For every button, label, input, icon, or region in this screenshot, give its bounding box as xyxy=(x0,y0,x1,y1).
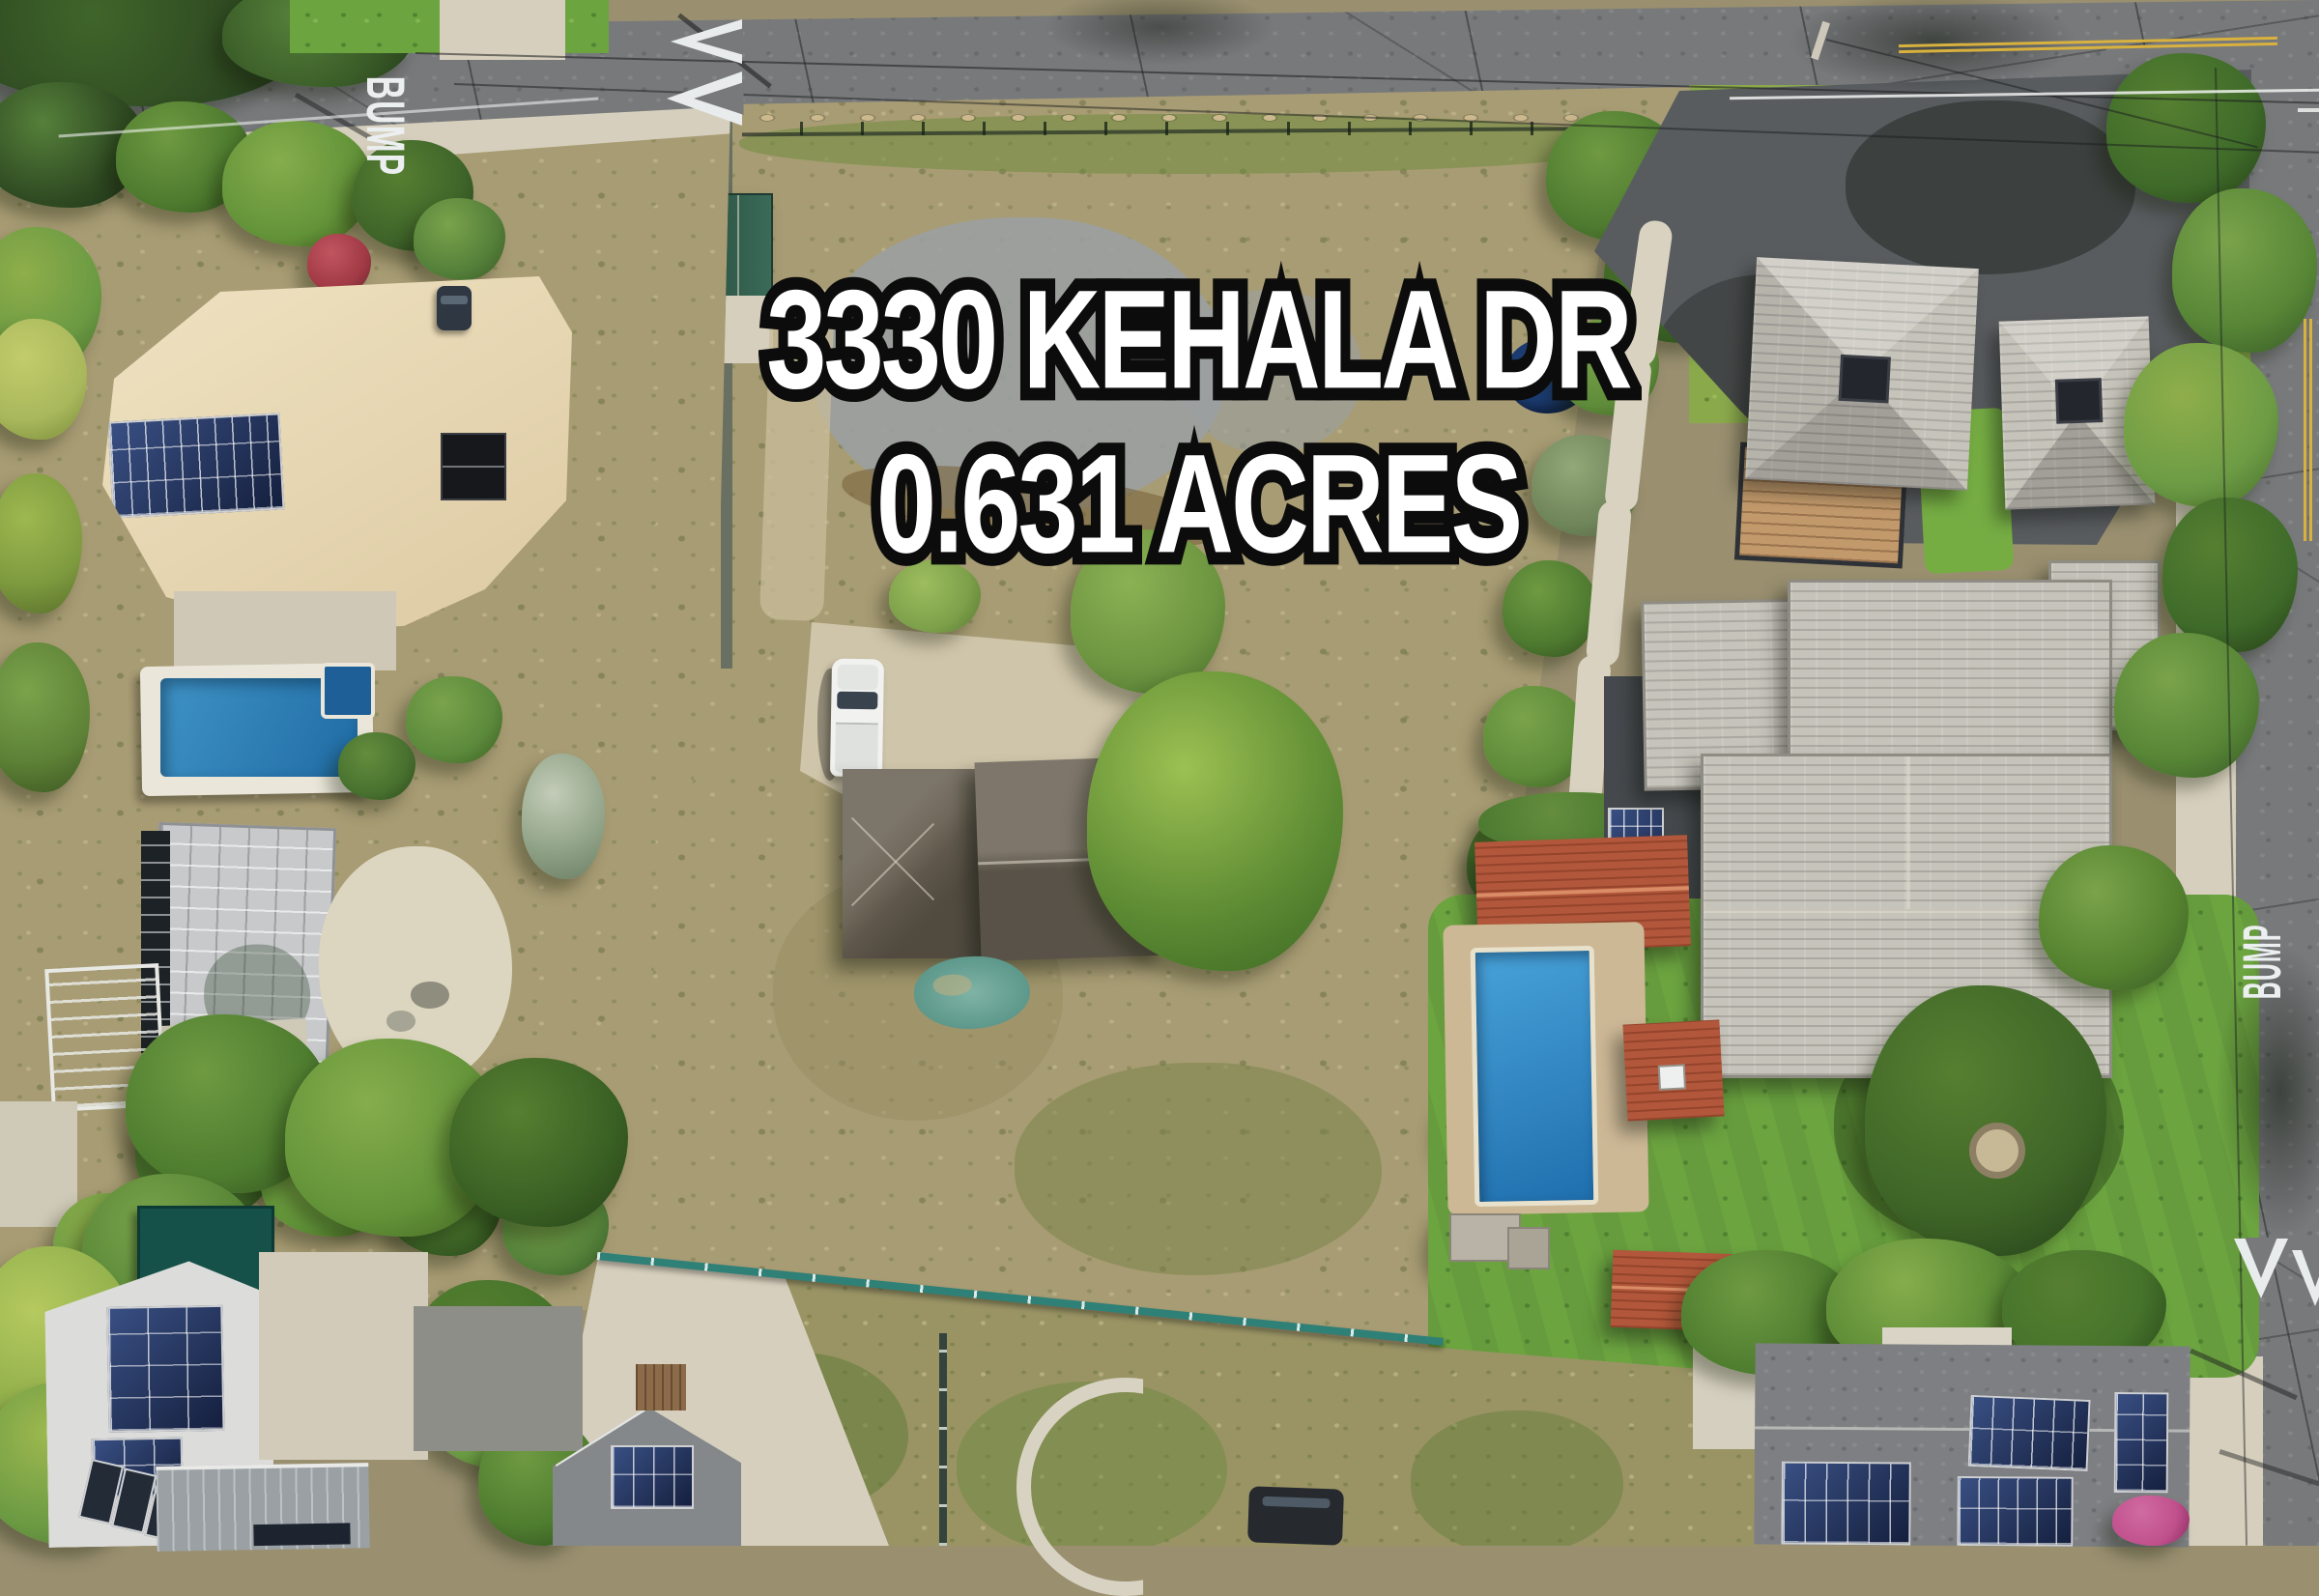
solar-array xyxy=(1957,1476,2073,1547)
solar-array xyxy=(611,1445,694,1509)
pergola-ridge xyxy=(1476,886,1689,898)
garden-tree xyxy=(414,198,505,280)
weed-patch xyxy=(1411,1411,1623,1555)
solar-array xyxy=(1781,1462,1911,1546)
lot-big-tree xyxy=(1087,671,1343,971)
lot-house-hip-roof xyxy=(843,769,989,958)
truck-windshield xyxy=(837,692,877,710)
speed-hump-chevron-down-icon xyxy=(2292,1250,2319,1306)
address-line-text: 3330 KEHALA DR xyxy=(766,261,1630,418)
lawn-tree xyxy=(1865,985,2106,1256)
bottomleft-driveway xyxy=(259,1252,428,1460)
left-driveway-stub xyxy=(0,1101,77,1227)
solar-array xyxy=(106,1305,224,1433)
roof-shade xyxy=(843,769,989,958)
acreage-line-text: 0.631 ACRES xyxy=(876,425,1520,582)
solar-strip xyxy=(253,1523,350,1546)
roadside-palm xyxy=(2114,633,2259,778)
aerial-photo: BUMP BUMP 3330 KEHALA DR 3330 KEHALA DR … xyxy=(0,0,2319,1546)
truck-roof xyxy=(838,665,878,691)
fire-pit xyxy=(1969,1123,2025,1179)
address-line: 3330 KEHALA DR 3330 KEHALA DR xyxy=(766,270,1630,411)
red-shed-roof xyxy=(1622,1019,1724,1121)
pool-patch xyxy=(932,974,972,996)
left-house-patio xyxy=(174,591,396,670)
right-pool xyxy=(1471,946,1599,1207)
solar-array xyxy=(2114,1392,2169,1493)
white-pickup-truck xyxy=(830,659,884,778)
address-overlay: 3330 KEHALA DR 3330 KEHALA DR 0.631 ACRE… xyxy=(0,286,2319,558)
parked-car-dark xyxy=(1247,1486,1344,1545)
driveway-apron-top xyxy=(440,0,565,60)
brush-patch xyxy=(1015,1063,1382,1275)
white-cross-line xyxy=(2298,108,2319,112)
flowering-bush xyxy=(307,234,371,294)
rock xyxy=(377,953,410,976)
roof-ridge xyxy=(1906,756,1910,909)
lawn-tree xyxy=(2039,845,2189,990)
speed-hump-chevron-icon xyxy=(667,71,742,126)
truck-bed xyxy=(835,723,878,774)
left-spa xyxy=(321,663,375,719)
silver-bush xyxy=(522,754,605,879)
gray-metal-roof xyxy=(156,1463,370,1552)
shed-skylight xyxy=(1658,1064,1686,1090)
rock xyxy=(386,1011,415,1032)
shed-ridge xyxy=(737,195,739,296)
drive-shadow xyxy=(1846,100,2135,274)
garden-palm xyxy=(222,121,372,246)
tree-shadow-on-road xyxy=(1044,0,1275,66)
bump-text: BUMP xyxy=(355,75,417,176)
rock xyxy=(411,982,449,1009)
fence-vertical xyxy=(939,1333,947,1546)
outdoor-kitchen xyxy=(1507,1227,1550,1269)
speed-hump-chevron-icon xyxy=(671,19,742,64)
bump-text: BUMP xyxy=(2230,924,2293,999)
car-windshield xyxy=(1262,1496,1330,1508)
yard-shrub xyxy=(406,676,502,763)
bottom-tree xyxy=(449,1058,628,1227)
asphalt-pad xyxy=(414,1306,583,1451)
acreage-line: 0.631 ACRES 0.631 ACRES xyxy=(876,434,1520,575)
fence-posts xyxy=(939,1333,947,1546)
bougainvillea xyxy=(2112,1496,2190,1546)
bump-marking-right: BUMP xyxy=(2236,927,2286,995)
yard-shrub xyxy=(338,732,415,800)
solar-array xyxy=(1968,1395,2091,1471)
speed-hump-chevron-down-icon xyxy=(2234,1239,2288,1298)
bump-marking-top: BUMP xyxy=(361,85,410,166)
wood-deck-strip xyxy=(636,1364,686,1411)
